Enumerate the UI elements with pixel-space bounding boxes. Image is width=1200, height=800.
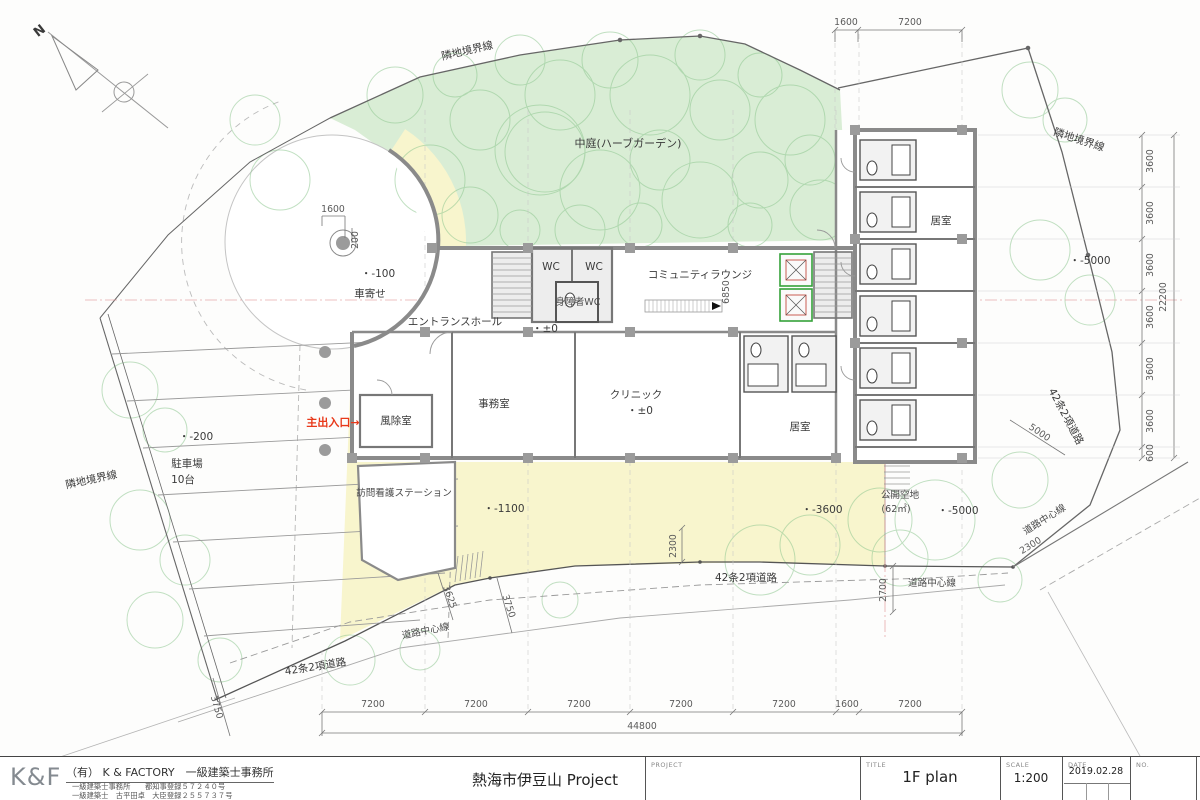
dim-right-2: 3600	[1145, 201, 1156, 225]
dim-top-1600: 1600	[834, 17, 858, 28]
dim-east-5000: 5000	[1027, 422, 1053, 444]
dim-right-600: 600	[1145, 444, 1156, 462]
drawing-title: 1F plan	[862, 768, 998, 786]
dim-right-1: 3600	[1145, 149, 1156, 173]
title-block: K&F （有） K & FACTORY 一級建築士事務所 一級建築士事務所 都知…	[0, 756, 1200, 800]
dim-bottom-3: 7200	[567, 699, 591, 710]
boundary-top-label: 隣地境界線	[440, 38, 495, 63]
open-space-level: ・-5000	[937, 505, 978, 517]
road-center-sw-label: 道路中心線	[401, 621, 451, 642]
community-lounge-label: コミュニティラウンジ	[648, 269, 752, 281]
firm-registration-2: 一級建築士 古平田卓 大臣登録２５５７３７号	[72, 791, 233, 800]
dim-stair-3625: 3625	[440, 584, 458, 610]
titleblock-divider	[1000, 757, 1001, 800]
drawing-sheet: 中庭(ハーブガーデン) 隣地境界線 隣地境界線 隣地境界線 車寄せ ・-100 …	[0, 0, 1200, 800]
dim-bottom-1: 7200	[361, 699, 385, 710]
project-cell-label: PROJECT	[651, 761, 683, 769]
dim-walk-3750: 3750	[499, 593, 517, 619]
windbreak-label: 風除室	[380, 414, 412, 427]
firm-name: （有） K & FACTORY 一級建築士事務所	[66, 764, 274, 783]
road-42-sw-label: 42条2項道路	[284, 655, 348, 678]
no-cell-label: NO.	[1136, 761, 1149, 769]
dim-court-200: 200	[350, 231, 361, 249]
parking-capacity: 10台	[171, 473, 195, 486]
open-space-label: 公開空地	[881, 489, 920, 501]
parking-level: ・-200	[179, 431, 213, 443]
dim-top-7200: 7200	[898, 17, 922, 28]
dim-right-6: 3600	[1145, 409, 1156, 433]
north-arrow: N	[31, 22, 168, 128]
dim-right-4: 3600	[1145, 305, 1156, 329]
dim-court-1600: 1600	[321, 204, 345, 215]
dim-right-5: 3600	[1145, 357, 1156, 381]
titleblock-divider	[1062, 757, 1063, 800]
firm-logo: K&F	[10, 763, 61, 791]
floor-plan-drawing: 中庭(ハーブガーデン) 隣地境界線 隣地境界線 隣地境界線 車寄せ ・-100 …	[0, 0, 1200, 756]
south-road-level: ・-3600	[801, 504, 842, 516]
nursing-station-label: 訪問看護ステーション	[356, 487, 452, 499]
dim-bottom-7: 7200	[898, 699, 922, 710]
room-south-label: 居室	[790, 420, 811, 433]
date-subgrid-tick	[1108, 783, 1109, 800]
dim-lounge-6850: 6850	[721, 280, 732, 304]
dim-bottom-4: 7200	[669, 699, 693, 710]
drawing-scale: 1:200	[1002, 771, 1060, 785]
date-subgrid-tick	[1086, 783, 1087, 800]
room-east-label: 居室	[931, 214, 952, 227]
open-space-area: (62㎡)	[881, 504, 910, 515]
north-letter: N	[31, 22, 49, 41]
project-name: 熱海市伊豆山 Project	[380, 769, 710, 790]
south-walk-level: ・-1100	[483, 503, 524, 515]
east-upper-level: ・-5000	[1069, 255, 1110, 267]
carport-level: ・-100	[361, 268, 395, 280]
titleblock-divider	[1130, 757, 1131, 800]
wc-left-label: WC	[542, 261, 560, 273]
boundary-left-label: 隣地境界線	[64, 468, 119, 492]
road-42-south-label: 42条2項道路	[715, 571, 778, 584]
titleblock-divider	[860, 757, 861, 800]
drawing-date: 2019.02.28	[1064, 766, 1128, 777]
hall-level: ・±0	[532, 323, 558, 335]
main-entrance-label: 主出入口→	[306, 415, 359, 429]
clinic-level: ・±0	[627, 405, 653, 417]
dim-right-3: 3600	[1145, 253, 1156, 277]
dim-green-2300: 2300	[668, 534, 679, 558]
accessible-wc-label: 身障者WC	[556, 296, 601, 308]
clinic-label: クリニック	[610, 389, 663, 401]
boundary-right-label: 隣地境界線	[1052, 125, 1106, 154]
dim-sw-3750: 3750	[208, 694, 225, 720]
carport-label: 車寄せ	[354, 287, 386, 300]
courtyard-label: 中庭(ハーブガーデン)	[575, 136, 682, 150]
scale-cell-label: SCALE	[1006, 761, 1029, 769]
dim-bottom-6: 1600	[835, 699, 859, 710]
office-label: 事務室	[478, 397, 510, 410]
dim-bottom-5: 7200	[772, 699, 796, 710]
road-center-south-label: 道路中心線	[908, 577, 956, 589]
titleblock-divider	[1196, 757, 1197, 800]
entrance-hall-label: エントランスホール	[408, 316, 502, 328]
wc-right-label: WC	[585, 261, 603, 273]
date-subgrid-line	[1064, 783, 1130, 784]
parking-label: 駐車場	[171, 457, 203, 470]
dim-bottom-2: 7200	[464, 699, 488, 710]
dim-right-total: 22200	[1158, 282, 1169, 312]
dim-bottom-total: 44800	[627, 721, 657, 732]
dim-road-2700: 2700	[878, 578, 889, 602]
